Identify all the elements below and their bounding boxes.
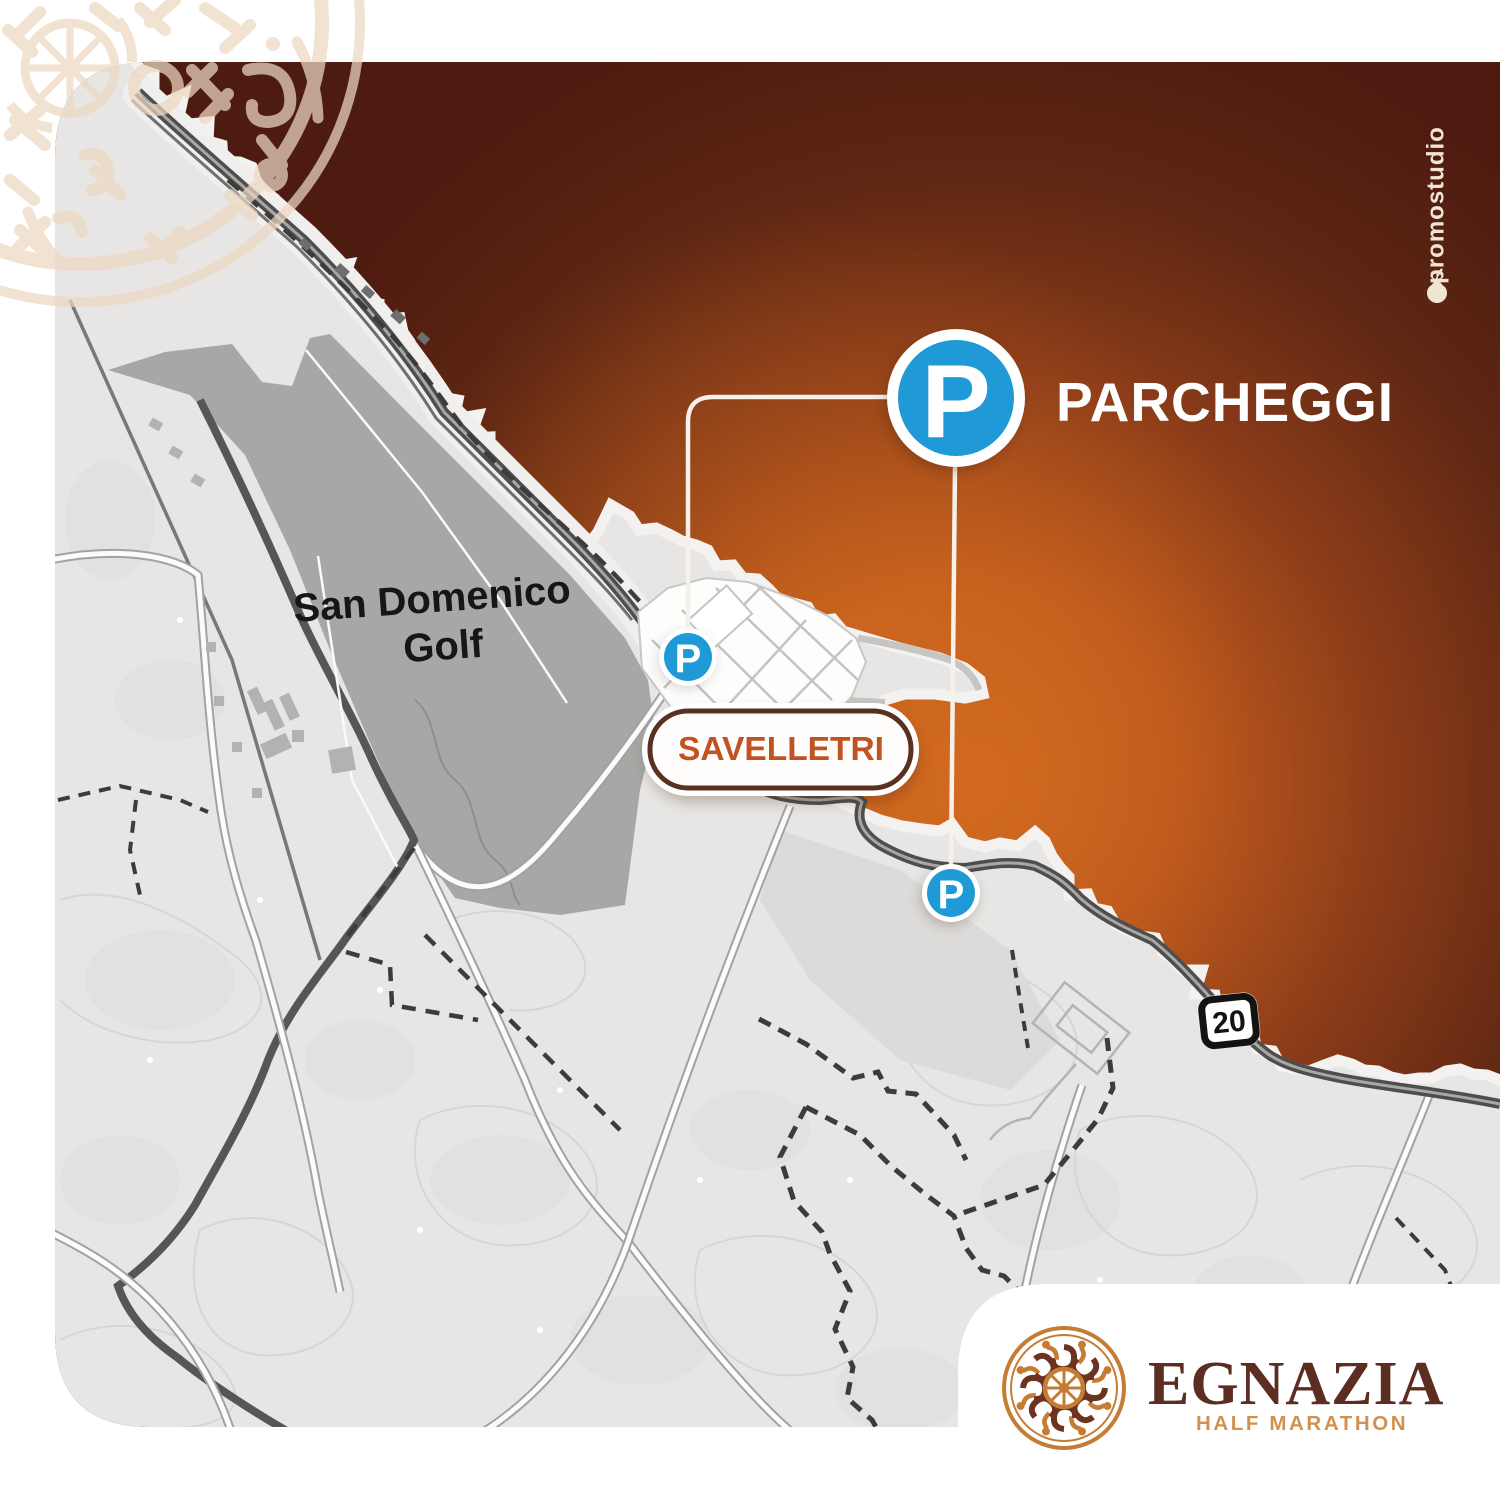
svg-text:EGNAZIA: EGNAZIA xyxy=(1148,1350,1444,1418)
svg-text:P: P xyxy=(921,344,990,460)
svg-text:Golf: Golf xyxy=(402,622,486,672)
svg-text:SAVELLETRI: SAVELLETRI xyxy=(678,731,884,768)
svg-text:20: 20 xyxy=(1211,1004,1248,1040)
svg-text:HALF MARATHON: HALF MARATHON xyxy=(1196,1412,1408,1435)
svg-text:P: P xyxy=(938,873,965,917)
svg-text:P: P xyxy=(675,637,702,681)
svg-text:promostudio: promostudio xyxy=(1422,126,1449,284)
svg-text:PARCHEGGI: PARCHEGGI xyxy=(1056,371,1394,433)
